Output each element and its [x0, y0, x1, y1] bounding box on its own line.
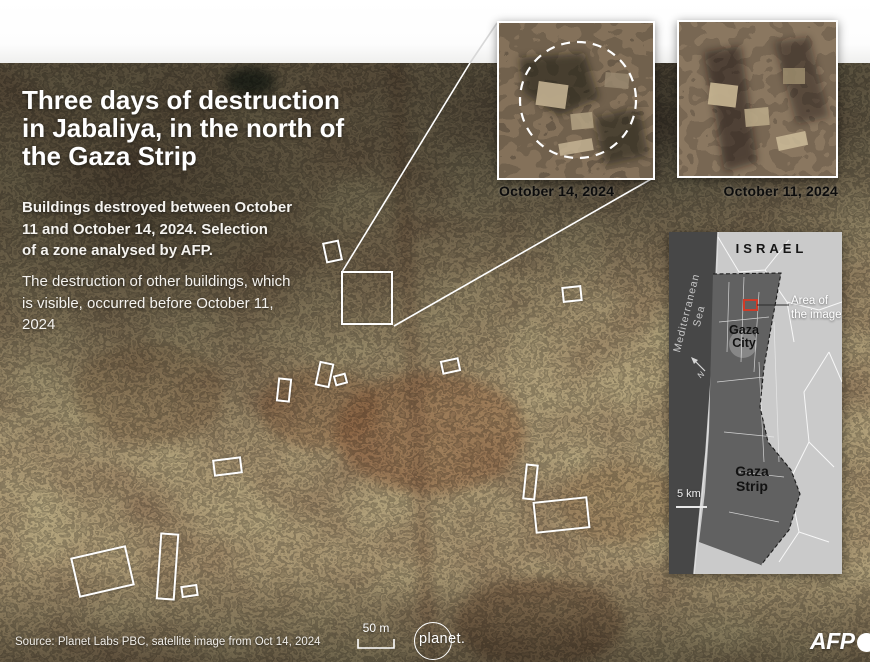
satellite-inset-oct14 [497, 21, 655, 180]
inset-oct11-caption: October 11, 2024 [672, 183, 838, 199]
minimap-gaza-strip-label: Gaza Strip [723, 464, 781, 494]
afp-logo: AFP [810, 628, 870, 655]
afp-logo-dot-icon [857, 633, 870, 652]
minimap-gaza-city-label: Gaza City [719, 324, 769, 350]
inset-oct14-caption: October 14, 2024 [499, 183, 614, 199]
minimap-scale-label: 5 km [677, 488, 701, 500]
scalebar-label: 50 m [355, 621, 397, 635]
secondary-paragraph: The destruction of other buildings, whic… [22, 271, 422, 336]
minimap-israel-label: ISRAEL [669, 241, 842, 256]
intro-paragraph: Buildings destroyed between October 11 a… [22, 197, 422, 262]
afp-infographic: Three days of destruction in Jabaliya, i… [0, 0, 870, 662]
afp-logo-text: AFP [810, 628, 855, 655]
satellite-inset-oct11 [677, 20, 838, 178]
planet-logo: planet. [419, 631, 465, 647]
scalebar-bracket [355, 638, 397, 652]
gaza-locator-map: N ISRAEL Mediterranean Sea Gaza City Are… [669, 232, 842, 574]
minimap-area-callout-label: Area of the image [791, 295, 842, 322]
source-credit: Source: Planet Labs PBC, satellite image… [15, 636, 321, 648]
page-title: Three days of destruction in Jabaliya, i… [22, 86, 422, 170]
